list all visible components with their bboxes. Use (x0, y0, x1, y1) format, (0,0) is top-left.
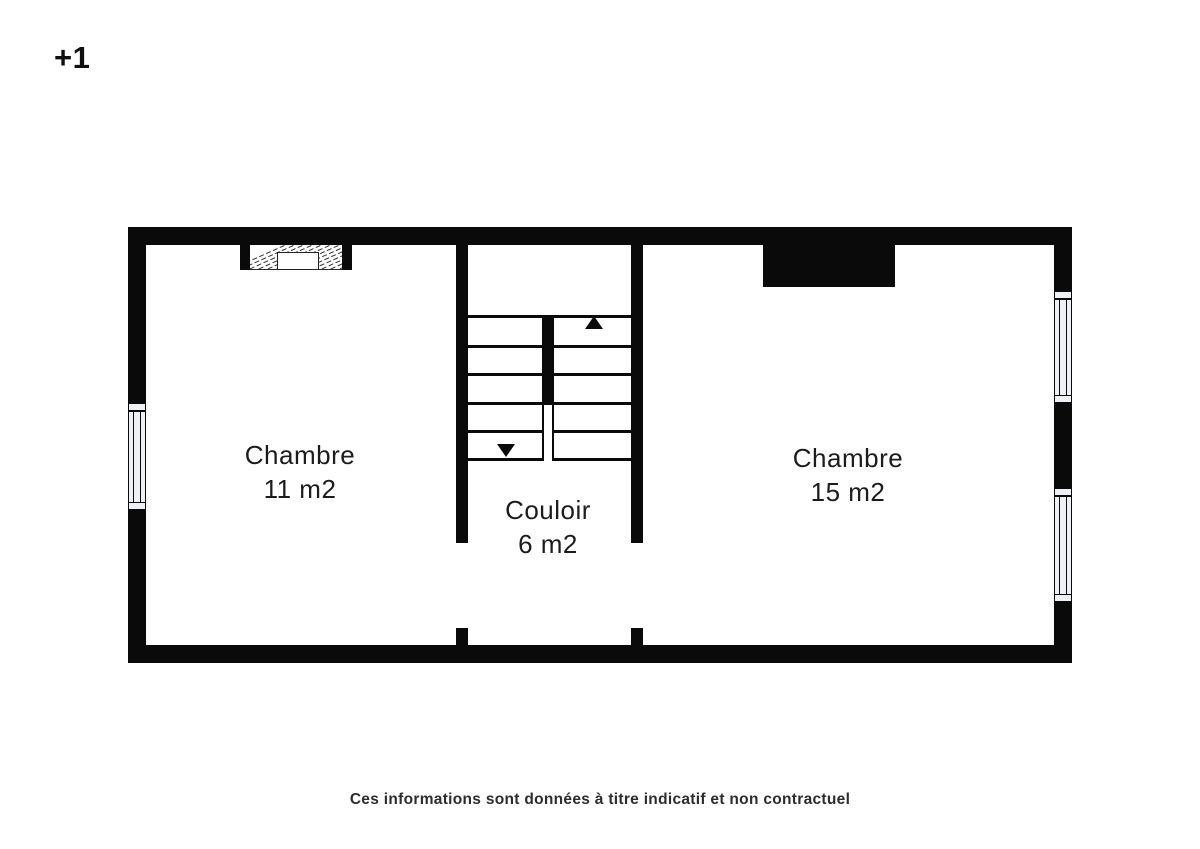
disclaimer-text: Ces informations sont données à titre in… (0, 791, 1200, 809)
room-area: 11 m2 (245, 472, 355, 506)
stairs-up-arrow-icon (585, 316, 603, 329)
door-stub-left (456, 628, 468, 645)
chimney-block (763, 245, 895, 287)
room-label-chambre-11: Chambre 11 m2 (245, 438, 355, 506)
room-name: Chambre (245, 438, 355, 472)
window-right-wall-upper (1054, 291, 1072, 403)
fireplace (240, 245, 352, 270)
room-label-couloir: Couloir 6 m2 (505, 493, 591, 561)
floor-plan: Chambre 11 m2 Couloir 6 m2 Chambre 15 m2 (128, 227, 1072, 663)
window-pane (133, 411, 141, 502)
room-name: Couloir (505, 493, 591, 527)
window-sill (129, 502, 145, 504)
room-area: 15 m2 (793, 475, 903, 509)
outer-wall-bottom (128, 645, 1072, 663)
stair-divider-wall (542, 315, 554, 405)
room-area: 6 m2 (505, 527, 591, 561)
outer-wall-top (128, 227, 1072, 245)
window-pane (1059, 299, 1067, 395)
fireplace-cap-left (240, 245, 250, 270)
floor-plan-page: +1 (0, 0, 1200, 849)
window-pane (1059, 496, 1067, 594)
corridor-wall-right (631, 245, 643, 543)
door-stub-right (631, 628, 643, 645)
stair-divider-rail (542, 405, 554, 461)
floor-level-label: +1 (54, 40, 90, 76)
fireplace-insert (277, 252, 319, 270)
room-label-chambre-15: Chambre 15 m2 (793, 441, 903, 509)
window-right-wall-lower (1054, 488, 1072, 602)
window-sill (1055, 395, 1071, 397)
window-left-wall (128, 403, 146, 510)
room-name: Chambre (793, 441, 903, 475)
stairs-down-arrow-icon (497, 444, 515, 457)
corridor-wall-left (456, 245, 468, 543)
fireplace-cap-right (342, 245, 352, 270)
window-sill (1055, 594, 1071, 596)
